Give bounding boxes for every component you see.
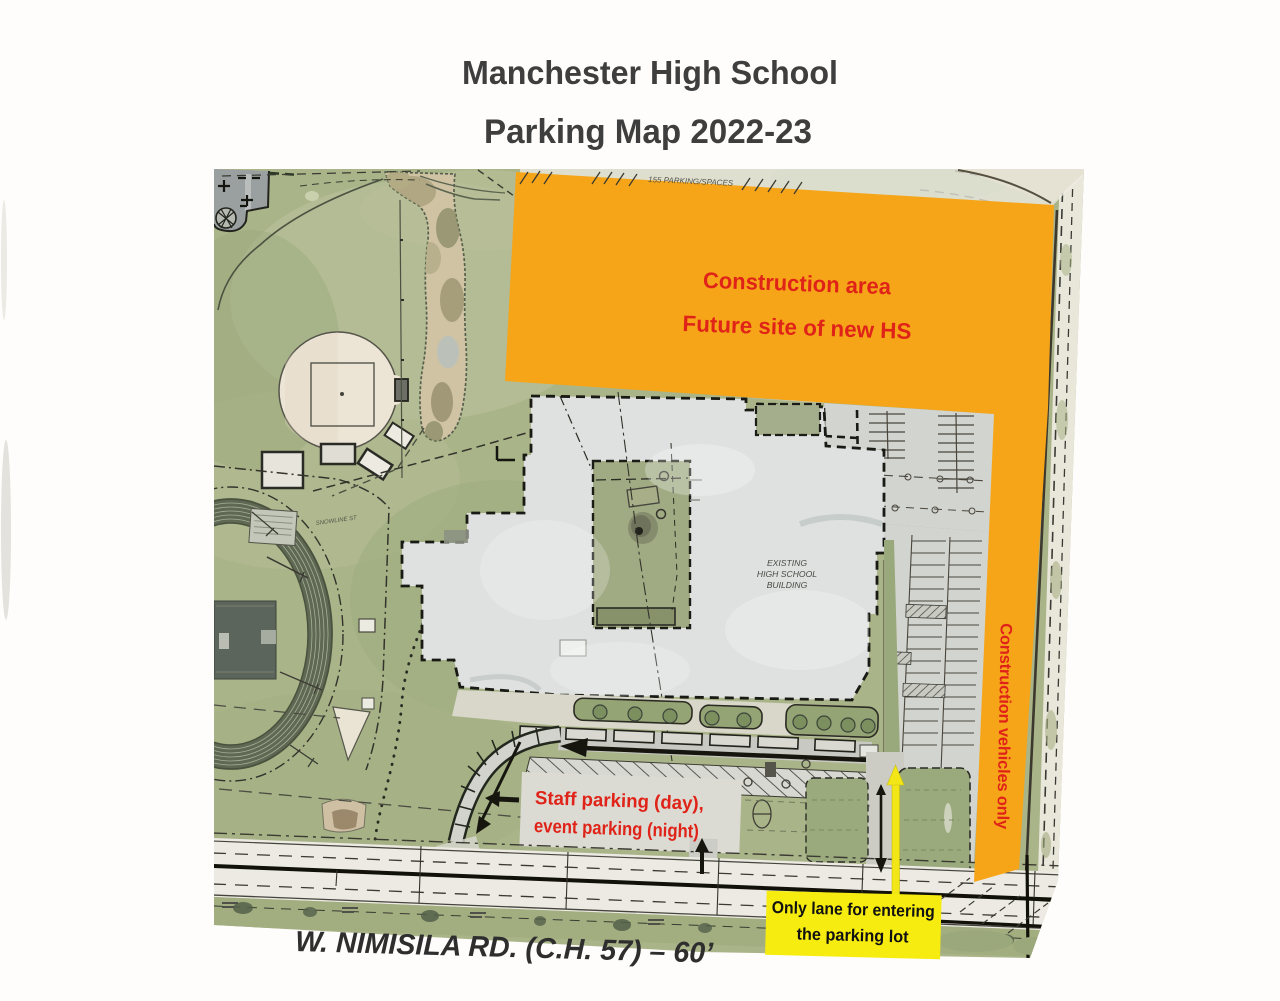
svg-text:Parking Map 2022-23: Parking Map 2022-23	[484, 113, 812, 151]
svg-text:Construction vehicles only: Construction vehicles only	[993, 623, 1015, 830]
svg-text:BUILDING: BUILDING	[767, 580, 808, 590]
svg-text:Manchester High School: Manchester High School	[462, 54, 838, 91]
svg-text:EXISTING: EXISTING	[767, 558, 807, 568]
svg-text:HIGH SCHOOL: HIGH SCHOOL	[757, 569, 817, 579]
svg-text:the parking lot: the parking lot	[796, 925, 909, 947]
